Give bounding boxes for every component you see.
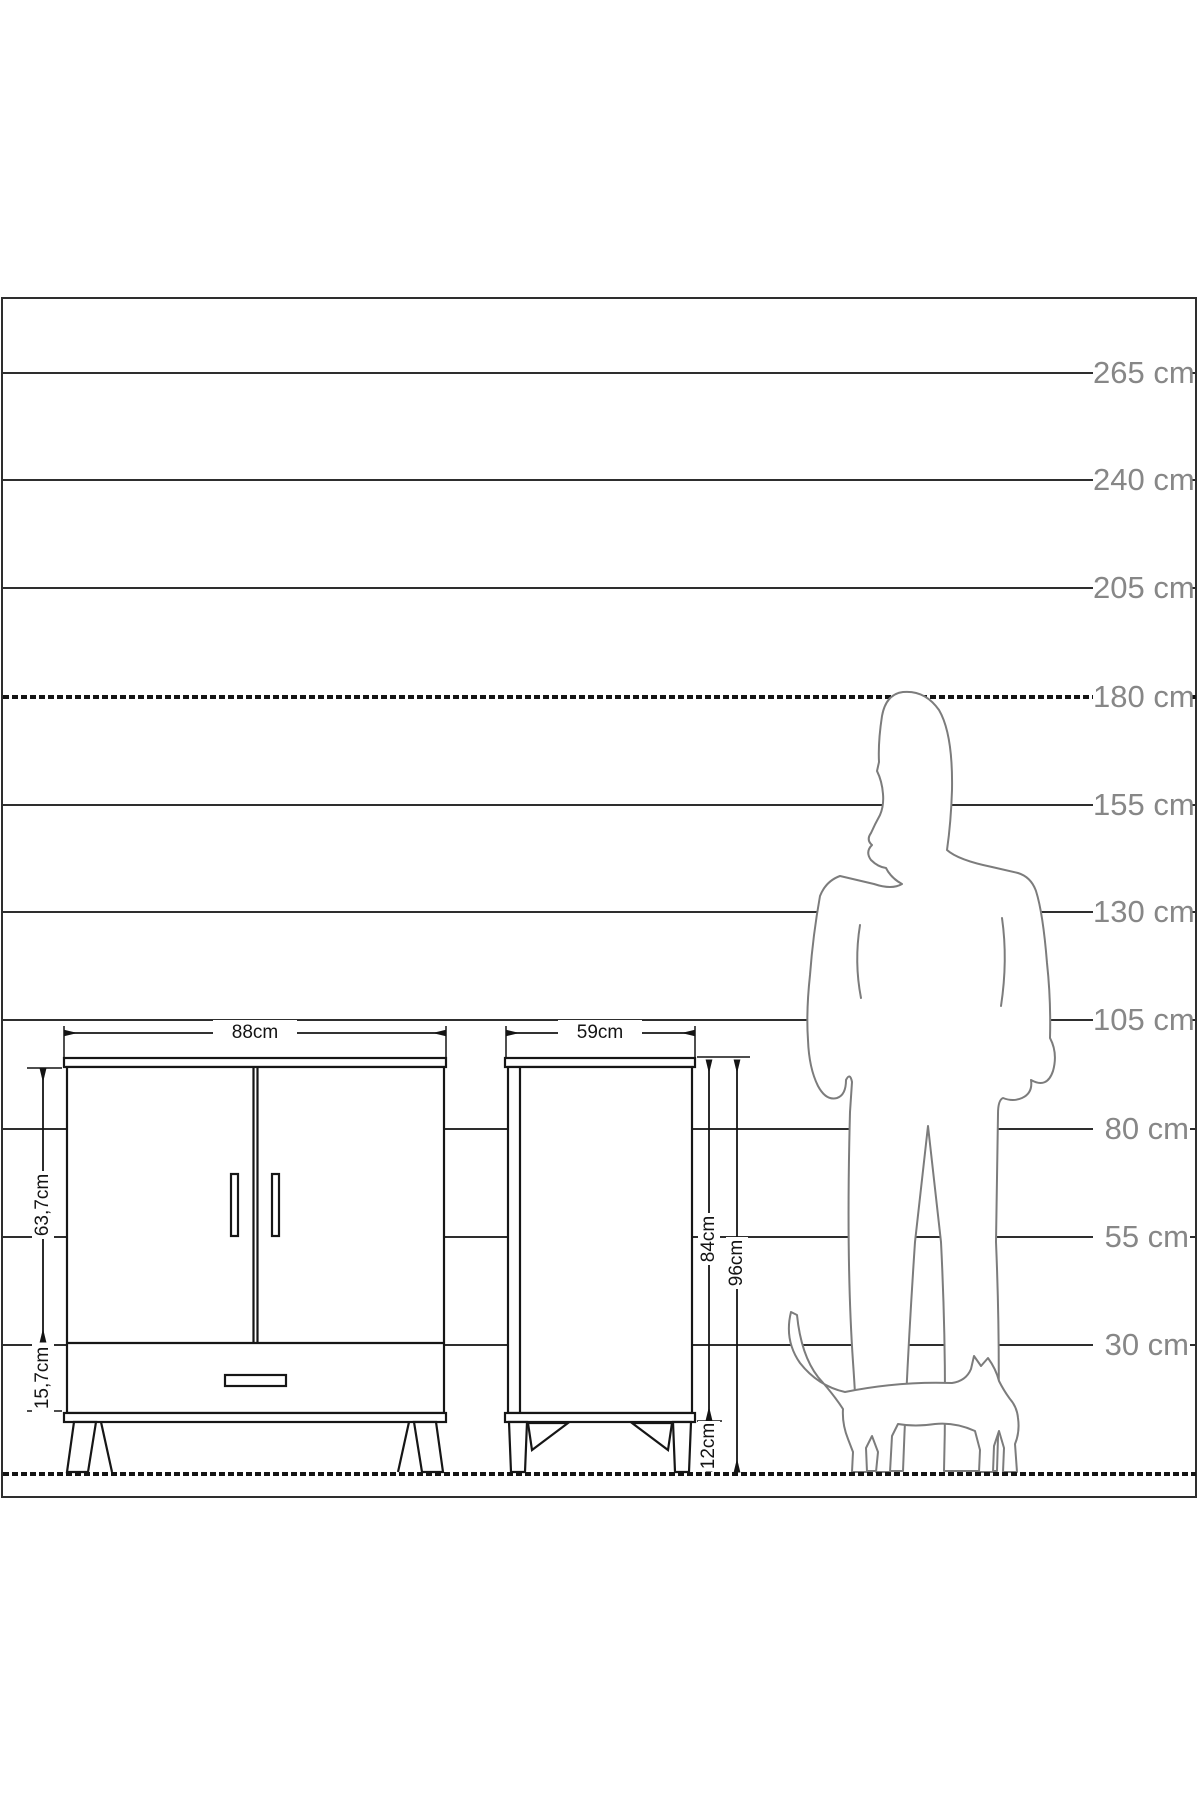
cabinet-front-left-door-handle <box>231 1174 238 1236</box>
cabinet-front-left-leg <box>67 1422 96 1472</box>
cabinet-side-body <box>508 1067 692 1413</box>
cabinet-side-bottom-board <box>505 1413 695 1422</box>
scale-label-105cm: 105 cm <box>1093 1003 1190 1037</box>
scale-label-130cm: 130 cm <box>1093 895 1190 929</box>
cabinet-side-top-board <box>505 1058 695 1067</box>
scale-label-265cm: 265 cm <box>1093 356 1190 390</box>
scale-label-180cm: 180 cm <box>1093 680 1190 714</box>
dim-label-leg-height: 12cm <box>698 1421 720 1471</box>
cabinet-front-bottom-board <box>64 1413 446 1422</box>
cabinet-front-body <box>67 1067 444 1413</box>
furniture-dimension-diagram: 265 cm 240 cm 205 cm 180 cm 155 cm 130 c… <box>0 0 1200 1800</box>
cabinet-side-back-leg-brace <box>632 1423 672 1450</box>
cabinet-side-view <box>505 1058 695 1472</box>
man-silhouette <box>807 692 1055 1471</box>
dim-label-drawer-height: 15,7cm <box>32 1344 54 1412</box>
cabinet-side-front-leg <box>509 1422 527 1472</box>
diagram-canvas <box>0 0 1200 1800</box>
scale-label-80cm: 80 cm <box>1093 1112 1190 1146</box>
cabinet-front-top-board <box>64 1058 446 1067</box>
cabinet-front-left-leg-back <box>101 1422 112 1472</box>
scale-label-240cm: 240 cm <box>1093 463 1190 497</box>
cabinet-front-drawer-handle <box>225 1375 286 1386</box>
dim-label-body-height: 84cm <box>698 1213 720 1265</box>
dim-label-front-width: 88cm <box>213 1020 297 1046</box>
cabinet-side-back-leg <box>673 1422 691 1472</box>
cabinet-front-right-leg <box>414 1422 443 1472</box>
cabinet-front-right-leg-back <box>398 1422 409 1472</box>
scale-label-155cm: 155 cm <box>1093 788 1190 822</box>
dim-label-door-height: 63,7cm <box>32 1171 54 1239</box>
scale-label-205cm: 205 cm <box>1093 571 1190 605</box>
scale-label-55cm: 55 cm <box>1093 1220 1190 1254</box>
cabinet-front-right-door-handle <box>272 1174 279 1236</box>
cabinet-front-view <box>64 1058 446 1472</box>
scale-label-30cm: 30 cm <box>1093 1328 1190 1362</box>
dim-label-side-depth: 59cm <box>558 1020 642 1046</box>
dim-label-total-height: 96cm <box>726 1237 748 1289</box>
cabinet-side-front-leg-brace <box>528 1423 568 1450</box>
